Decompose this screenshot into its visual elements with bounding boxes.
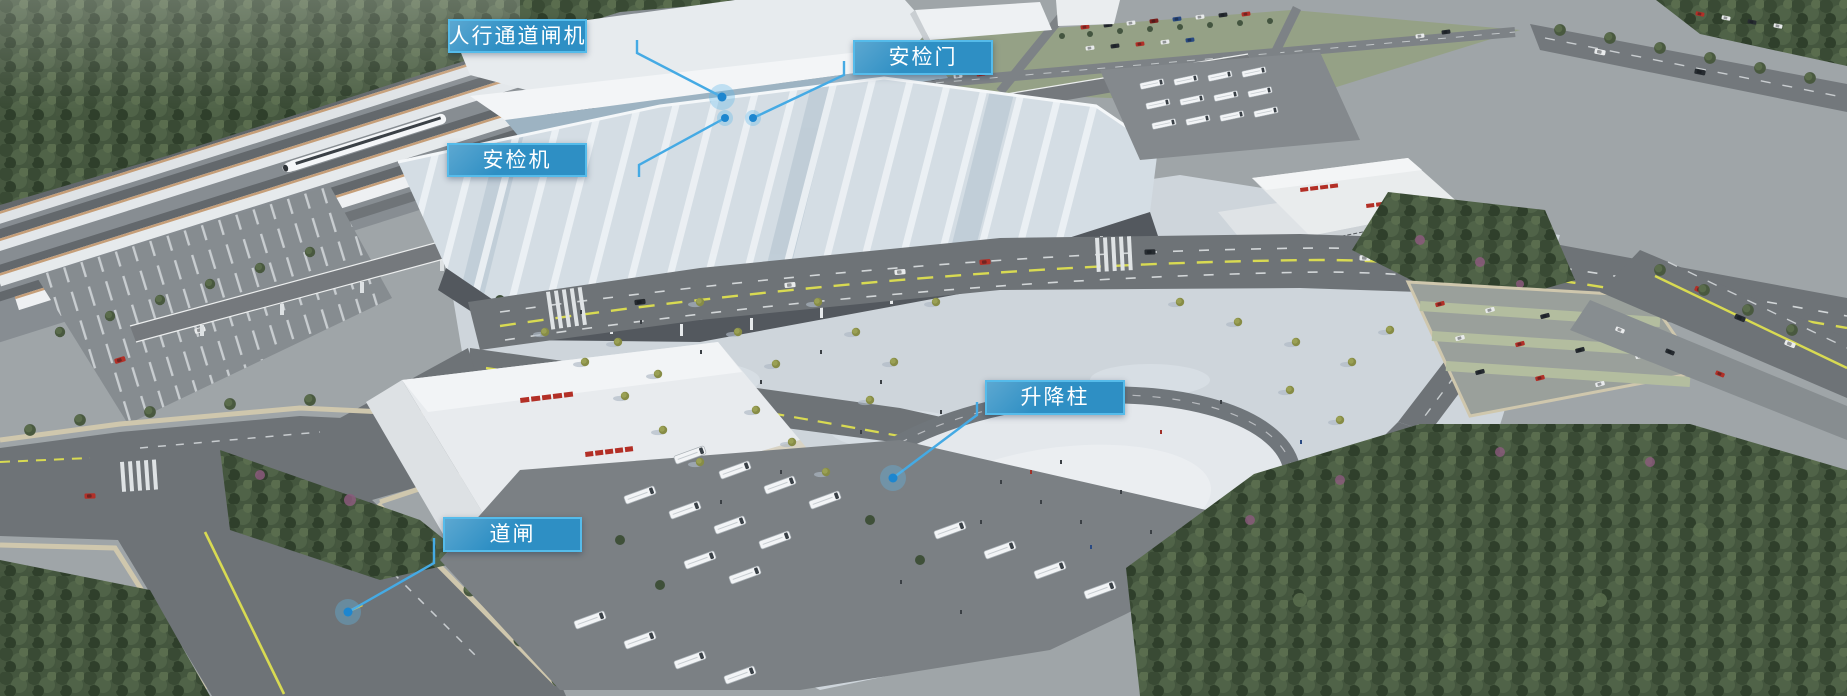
callout-pedestrian-channel-gate[interactable]: 人行通道闸机: [448, 19, 587, 53]
callout-security-door[interactable]: 安检门: [853, 40, 993, 75]
callout-road-barrier[interactable]: 道闸: [443, 517, 582, 552]
callout-label: 道闸: [490, 524, 536, 545]
aerial-render: [0, 0, 1847, 696]
callout-label: 升降柱: [1021, 387, 1090, 408]
station-aerial-banner: 人行通道闸机 安检门 安检机 升降柱 道闸: [0, 0, 1847, 696]
callout-lifting-bollard[interactable]: 升降柱: [985, 380, 1125, 415]
callout-label: 安检门: [889, 47, 958, 68]
callout-label: 安检机: [483, 150, 552, 171]
callout-security-scanner[interactable]: 安检机: [447, 143, 587, 177]
callout-label: 人行通道闸机: [449, 26, 587, 47]
